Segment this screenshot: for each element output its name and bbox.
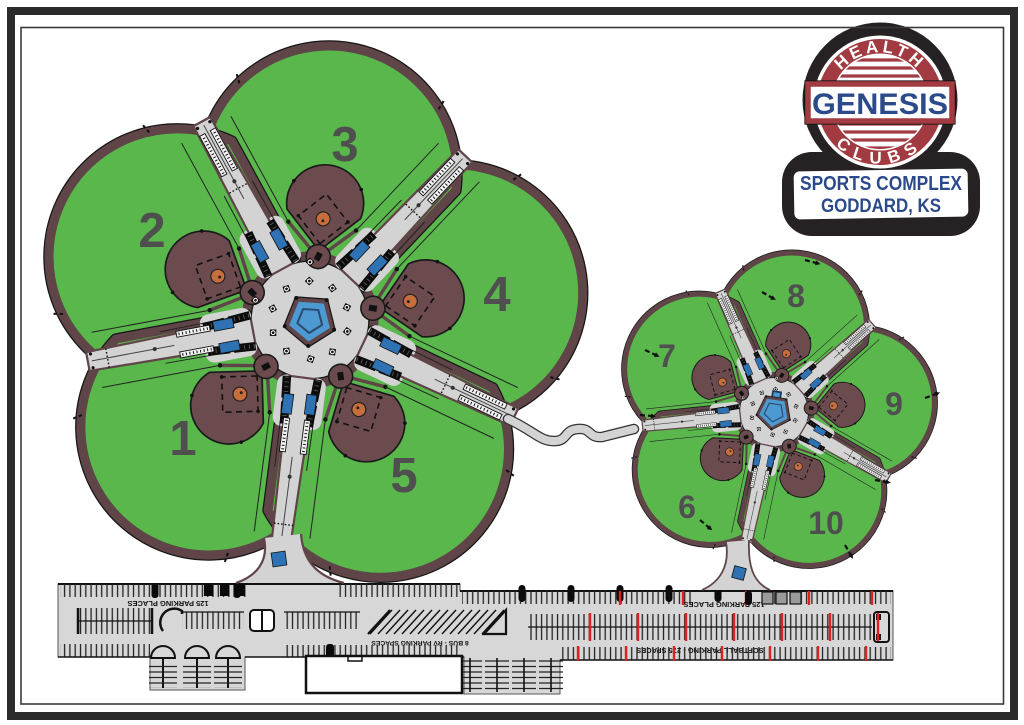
svg-text:1: 1 — [169, 412, 196, 466]
svg-text:8 BUS - RV PARKING SPACES: 8 BUS - RV PARKING SPACES — [371, 639, 469, 646]
svg-text:125 PARKING PLACES: 125 PARKING PLACES — [683, 600, 764, 609]
svg-text:7: 7 — [658, 338, 676, 374]
svg-text:8: 8 — [787, 278, 805, 314]
svg-text:4: 4 — [483, 268, 510, 322]
svg-text:9: 9 — [885, 386, 903, 422]
svg-text:10: 10 — [808, 505, 844, 541]
svg-text:3: 3 — [331, 118, 358, 172]
svg-text:GENESIS: GENESIS — [812, 88, 948, 121]
svg-text:6: 6 — [678, 489, 696, 525]
svg-text:GODDARD, KS: GODDARD, KS — [821, 196, 941, 217]
svg-text:2: 2 — [138, 204, 165, 258]
svg-text:5: 5 — [390, 449, 417, 503]
svg-text:125 PARKING PLACES: 125 PARKING PLACES — [127, 599, 208, 608]
svg-text:SPORTS COMPLEX: SPORTS COMPLEX — [800, 172, 962, 195]
